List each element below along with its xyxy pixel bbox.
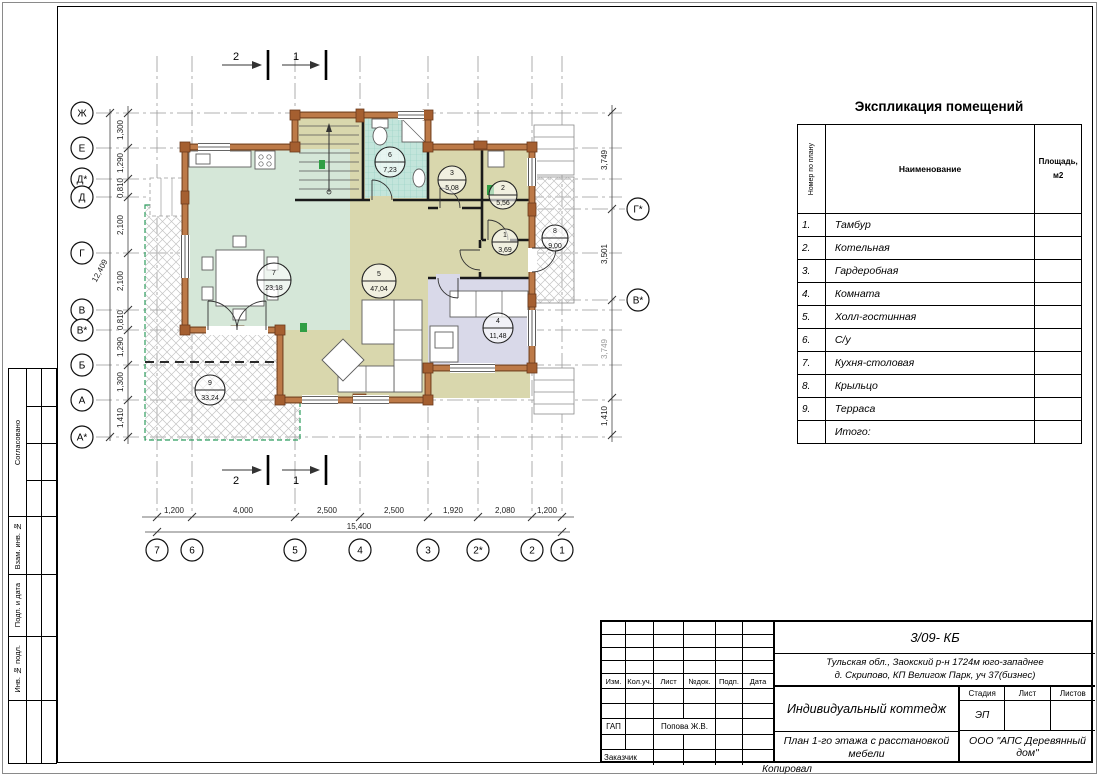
stage-label: Стадия — [960, 687, 1005, 700]
drawing-title: План 1-го этажа с расстановкой мебели — [775, 732, 960, 763]
svg-text:6: 6 — [189, 546, 195, 557]
col-area-label1: Площадь, — [1039, 155, 1078, 169]
svg-text:Г: Г — [79, 249, 85, 260]
window — [353, 395, 389, 405]
svg-text:1,920: 1,920 — [443, 506, 464, 515]
stage-values: ЭП — [960, 701, 1095, 731]
stage-value: ЭП — [960, 701, 1005, 730]
room-label-terrace: 933,24 — [195, 375, 225, 405]
svg-text:8: 8 — [553, 228, 557, 235]
gap-row: ГАП Попова Ж.В. — [602, 719, 773, 735]
axis-bubbles-bottom: 7 6 5 4 3 2* 2 1 — [146, 539, 573, 561]
sofa-vertical — [394, 300, 422, 392]
stage-header: Стадия Лист Листов — [960, 687, 1095, 701]
title-block-left: Изм. Кол.уч. Лист №док. Подп. Дата ГАП П… — [602, 622, 775, 761]
drawing-title-line1: План 1-го этажа с расстановкой — [784, 735, 949, 747]
room-label-hall: 547,04 — [362, 264, 396, 298]
svg-text:3,749: 3,749 — [600, 149, 609, 170]
side-label-text: Согласовано — [13, 420, 22, 465]
explication-table: Номер по плану Наименование Площадь, м2 … — [797, 124, 1082, 444]
side-cells — [27, 637, 56, 700]
explication-row: 4.Комната — [798, 283, 1081, 306]
svg-text:1,300: 1,300 — [116, 119, 125, 140]
svg-text:Д*: Д* — [77, 175, 88, 186]
customer-label: Заказчик — [602, 750, 654, 765]
drawing-title-line2: мебели — [848, 748, 884, 760]
dimensions-bottom: 1,200 4,000 2,500 2,500 1,920 2,080 1,20… — [142, 506, 574, 536]
side-block-empty — [9, 701, 56, 763]
steps-top-right — [534, 125, 574, 175]
svg-text:5,08: 5,08 — [445, 185, 459, 192]
window — [527, 158, 537, 186]
svg-text:7: 7 — [154, 546, 160, 557]
svg-text:6: 6 — [388, 152, 392, 159]
svg-text:1,300: 1,300 — [116, 371, 125, 392]
explication-row: 3.Гардеробная — [798, 260, 1081, 283]
project-address: Тульская обл., Заокский р-н 1724м юго-за… — [775, 654, 1095, 687]
address-line1: Тульская обл., Заокский р-н 1724м юго-за… — [826, 657, 1043, 669]
svg-text:А: А — [79, 396, 86, 407]
side-label-inv: Инв. № подл. — [9, 637, 27, 700]
svg-text:23,18: 23,18 — [265, 285, 283, 292]
svg-text:1,410: 1,410 — [600, 405, 609, 426]
address-line2: д. Скрипово, КП Велигож Парк, уч 37(бизн… — [835, 670, 1036, 682]
svg-text:2: 2 — [529, 546, 535, 557]
title-block-header-row: Изм. Кол.уч. Лист №док. Подп. Дата — [602, 674, 773, 689]
svg-text:А*: А* — [77, 433, 88, 444]
svg-text:Д: Д — [79, 193, 86, 204]
side-block-vzam: Взам. инв. № — [9, 517, 56, 575]
svg-text:5,56: 5,56 — [496, 200, 510, 207]
chair — [233, 236, 246, 247]
company-name: ООО "АПС Деревянный дом" — [960, 731, 1095, 763]
wardrobe-inner — [435, 332, 453, 348]
svg-text:4: 4 — [357, 546, 363, 557]
svg-text:1,200: 1,200 — [164, 506, 185, 515]
col-number: Номер по плану — [798, 125, 826, 213]
explication-row: 1.Тамбур — [798, 214, 1081, 237]
steps-left — [150, 178, 183, 216]
svg-text:2: 2 — [233, 475, 239, 487]
svg-text:2,500: 2,500 — [384, 506, 405, 515]
window — [198, 142, 230, 152]
kitchen-sink — [196, 154, 210, 164]
svg-text:1: 1 — [293, 51, 299, 63]
room-label-wardrobe: 35,08 — [438, 166, 466, 194]
svg-text:Б: Б — [79, 361, 86, 372]
toilet-icon — [373, 127, 387, 145]
svg-text:9: 9 — [208, 380, 212, 387]
svg-text:7: 7 — [272, 270, 276, 277]
side-label-podp: Подп. и дата — [9, 575, 27, 636]
svg-text:Г*: Г* — [633, 205, 642, 216]
gap-value: Попова Ж.В. — [654, 719, 716, 734]
svg-text:В*: В* — [77, 326, 88, 337]
bedroom-sofa — [450, 291, 528, 317]
sheet-value — [1005, 701, 1050, 730]
explication-row: 5.Холл-гостинная — [798, 306, 1081, 329]
sheets-label: Листов — [1051, 687, 1095, 700]
svg-text:2,100: 2,100 — [116, 214, 125, 235]
axis-bubbles-right: Г* В* — [627, 198, 649, 311]
room-label-porch: 89,00 — [542, 225, 568, 251]
col-name-label: Наименование — [899, 164, 961, 174]
room-label-bathroom: 67,23 — [375, 147, 405, 177]
svg-text:1,200: 1,200 — [537, 506, 558, 515]
col-name: Наименование — [826, 125, 1036, 213]
svg-text:В*: В* — [633, 296, 644, 307]
col-area-label2: м2 — [1053, 169, 1063, 183]
window — [527, 310, 537, 346]
explication-title: Экспликация помещений — [795, 99, 1083, 114]
hall-table — [362, 300, 394, 344]
title-block: Изм. Кол.уч. Лист №док. Подп. Дата ГАП П… — [600, 620, 1093, 763]
svg-text:7,23: 7,23 — [383, 167, 397, 174]
svg-text:4: 4 — [496, 318, 500, 325]
side-label-text: Подп. и дата — [13, 583, 22, 627]
svg-text:1,290: 1,290 — [116, 336, 125, 357]
side-block-inv: Инв. № подл. — [9, 637, 56, 701]
svg-text:3: 3 — [425, 546, 431, 557]
window — [450, 363, 495, 373]
svg-text:5: 5 — [292, 546, 298, 557]
explication-header: Номер по плану Наименование Площадь, м2 — [798, 125, 1081, 214]
svg-text:3,749: 3,749 — [600, 338, 609, 359]
svg-text:47,04: 47,04 — [370, 286, 388, 293]
room-label-kitchen: 723,18 — [257, 263, 291, 297]
side-label-agreed: Согласовано — [9, 369, 27, 516]
floor-plan: 723,18 547,04 67,23 35,08 25,56 13,69 89… — [50, 10, 670, 570]
axis-bubbles-left: Ж Е Д* Д Г В В* Б А А* — [71, 102, 93, 448]
dimensions-left: 1,300 1,290 0,810 2,100 2,100 0,810 1,29… — [90, 106, 132, 444]
svg-text:4,000: 4,000 — [233, 506, 254, 515]
side-cells — [27, 575, 56, 636]
copied-label: Копировал — [737, 764, 837, 775]
svg-text:2,100: 2,100 — [116, 270, 125, 291]
company-line2: дом" — [1016, 747, 1039, 759]
steps-bottom-right — [534, 368, 574, 414]
side-label-text: Инв. № подл. — [13, 645, 22, 693]
dimensions-right: 3,749 3,501 3,749 1,410 — [600, 105, 616, 442]
company-line1: ООО "АПС Деревянный — [969, 735, 1086, 747]
room-label-bedroom: 411,48 — [483, 313, 513, 343]
svg-text:1: 1 — [503, 232, 507, 239]
sheets-value — [1051, 701, 1095, 730]
svg-text:3: 3 — [450, 170, 454, 177]
side-label-text: Взам. инв. № — [13, 522, 22, 569]
svg-text:1,290: 1,290 — [116, 152, 125, 173]
svg-text:0,810: 0,810 — [116, 309, 125, 330]
window — [180, 235, 190, 278]
explication-row: 8.Крыльцо — [798, 375, 1081, 398]
side-cells — [27, 701, 56, 763]
svg-text:2*: 2* — [473, 546, 483, 557]
side-block-agreed: Согласовано — [9, 369, 56, 517]
stove — [255, 151, 275, 169]
explication-row-total: Итого: — [798, 421, 1081, 443]
svg-text:2: 2 — [501, 185, 505, 192]
window — [302, 395, 338, 405]
project-name: Индивидуальный коттедж — [775, 687, 960, 732]
chair — [202, 257, 213, 270]
svg-text:2: 2 — [233, 51, 239, 63]
svg-text:5: 5 — [377, 271, 381, 278]
svg-text:9,00: 9,00 — [548, 243, 562, 250]
sheet-label: Лист — [1005, 687, 1050, 700]
svg-text:2,080: 2,080 — [495, 506, 516, 515]
explication-row: 7.Кухня-столовая — [798, 352, 1081, 375]
explication-row: 2.Котельная — [798, 237, 1081, 260]
svg-text:33,24: 33,24 — [201, 395, 219, 402]
chair — [202, 287, 213, 300]
col-area: Площадь, м2 — [1035, 125, 1081, 213]
svg-text:15,400: 15,400 — [347, 522, 372, 531]
svg-text:Е: Е — [79, 144, 86, 155]
svg-text:11,48: 11,48 — [490, 333, 507, 340]
window — [398, 110, 424, 120]
project-code: 3/09- КБ — [775, 622, 1095, 654]
boiler — [488, 151, 504, 167]
svg-text:1,410: 1,410 — [116, 407, 125, 428]
svg-text:1: 1 — [293, 475, 299, 487]
svg-text:3,69: 3,69 — [498, 247, 512, 254]
title-block-right: 3/09- КБ Тульская обл., Заокский р-н 172… — [775, 622, 1095, 761]
svg-text:Ж: Ж — [77, 109, 87, 120]
svg-text:В: В — [79, 306, 86, 317]
room-label-boiler: 25,56 — [489, 181, 517, 209]
sink-icon — [413, 169, 425, 187]
room-label-tambour: 13,69 — [492, 229, 518, 255]
svg-text:2,500: 2,500 — [317, 506, 338, 515]
explication-row: 6.С/у — [798, 329, 1081, 352]
side-label-vzam: Взам. инв. № — [9, 517, 27, 574]
svg-text:3,501: 3,501 — [600, 243, 609, 264]
col-number-label: Номер по плану — [808, 143, 815, 195]
explication-row: 9.Терраса — [798, 398, 1081, 421]
svg-text:12,409: 12,409 — [90, 257, 110, 283]
customer-row: Заказчик — [602, 750, 773, 765]
drawing-sheet: { "sheet": { "copied_label": "Копировал"… — [0, 0, 1100, 777]
svg-text:1: 1 — [559, 546, 565, 557]
side-block-podp: Подп. и дата — [9, 575, 56, 637]
gap-label: ГАП — [602, 719, 626, 734]
side-label-empty — [9, 701, 27, 763]
svg-text:0,810: 0,810 — [116, 177, 125, 198]
